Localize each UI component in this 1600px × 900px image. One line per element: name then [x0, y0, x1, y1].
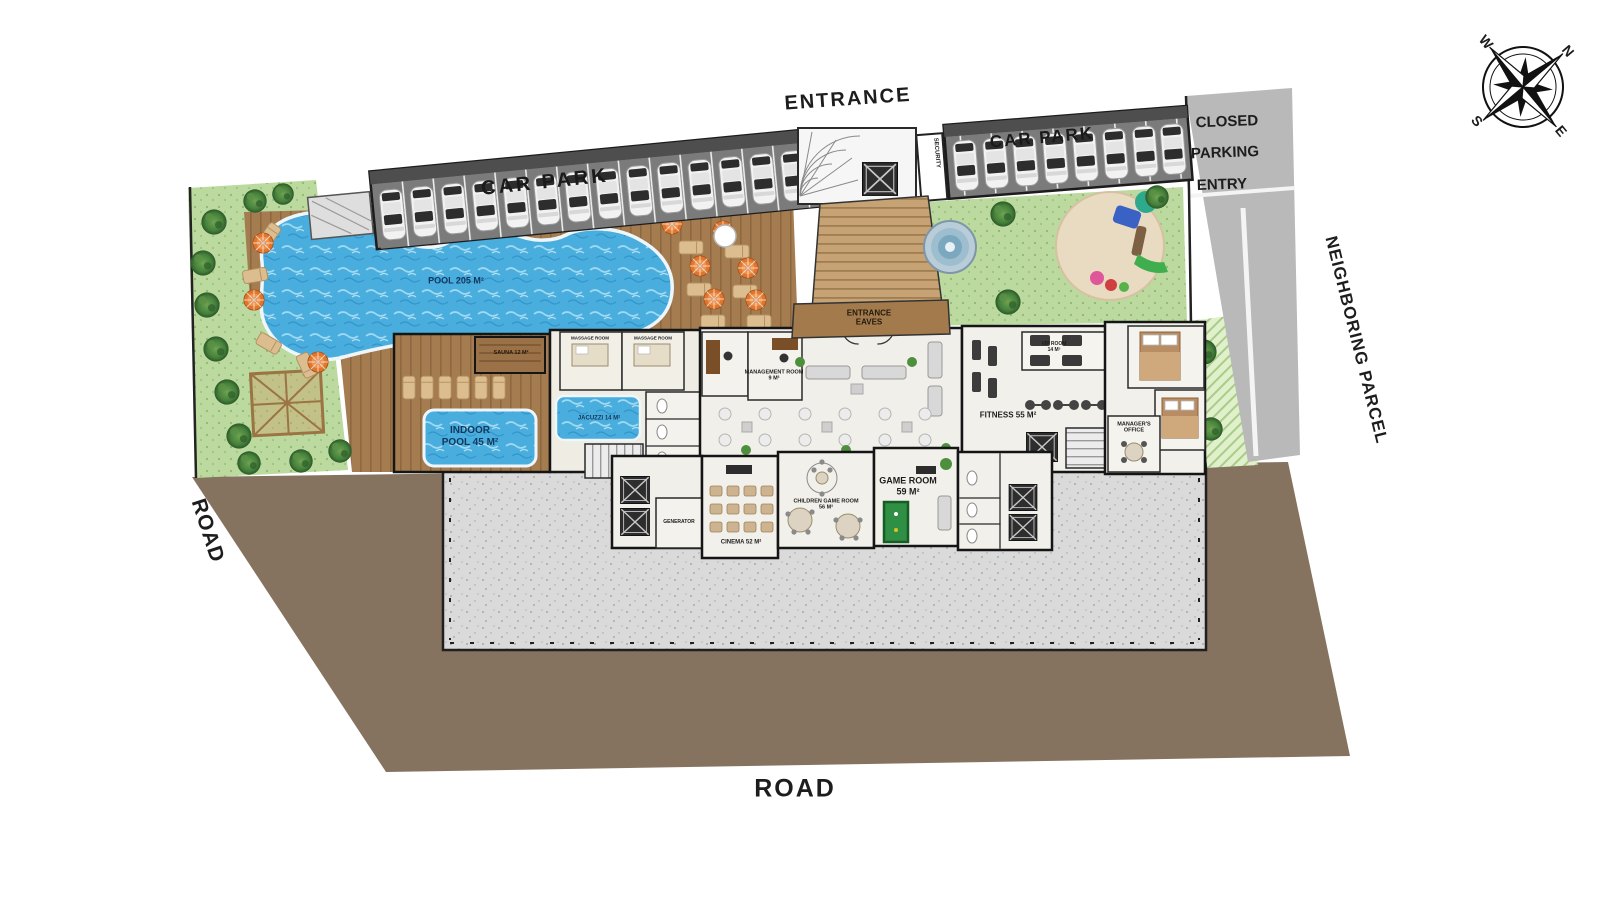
label-massage-2: MASSAGE ROOM [634, 335, 672, 340]
utility-block [612, 456, 702, 548]
label-parking: PARKING [1191, 143, 1260, 163]
wc-block [958, 452, 1052, 550]
label-road-bottom: ROAD [754, 774, 836, 804]
compass-rose [1450, 14, 1597, 161]
site-plan: ENTRANCE CAR PARK CAR PARK CLOSED PARKIN… [0, 0, 1600, 900]
bedroom-wing [1105, 322, 1205, 474]
label-closed: CLOSED [1195, 112, 1258, 132]
label-fitness: FITNESS 55 M² [980, 410, 1036, 419]
label-children-room: CHILDREN GAME ROOM56 M² [793, 499, 858, 512]
game-room [874, 448, 958, 546]
label-management-room: MANAGEMENT ROOM9 M² [745, 370, 804, 383]
site-plan-drawing [0, 0, 1600, 900]
label-massage-1: MASSAGE ROOM [571, 335, 609, 340]
fountain [924, 221, 976, 273]
label-entry: ENTRY [1197, 175, 1248, 194]
label-game-room: GAME ROOM59 M² [879, 475, 937, 496]
car-park-right [916, 106, 1193, 201]
pergola [250, 370, 323, 436]
label-cinema: CINEMA 52 M² [721, 539, 761, 546]
label-vip-room: VIP ROOM14 M² [1042, 342, 1067, 354]
label-managers-office: MANAGER'SOFFICE [1117, 422, 1150, 435]
label-indoor-pool: INDOORPOOL 45 M² [442, 425, 499, 449]
entrance-steps [812, 196, 942, 310]
label-generator: GENERATOR [663, 520, 694, 526]
label-sauna: SAUNA 12 M² [494, 350, 529, 356]
fitness-block [962, 326, 1110, 472]
label-jacuzzi: JACUZZI 14 M² [578, 415, 620, 422]
label-entrance-eaves: ENTRANCEEAVES [847, 309, 891, 328]
label-pool: POOL 205 M² [428, 276, 484, 287]
lobby-block [700, 328, 962, 458]
